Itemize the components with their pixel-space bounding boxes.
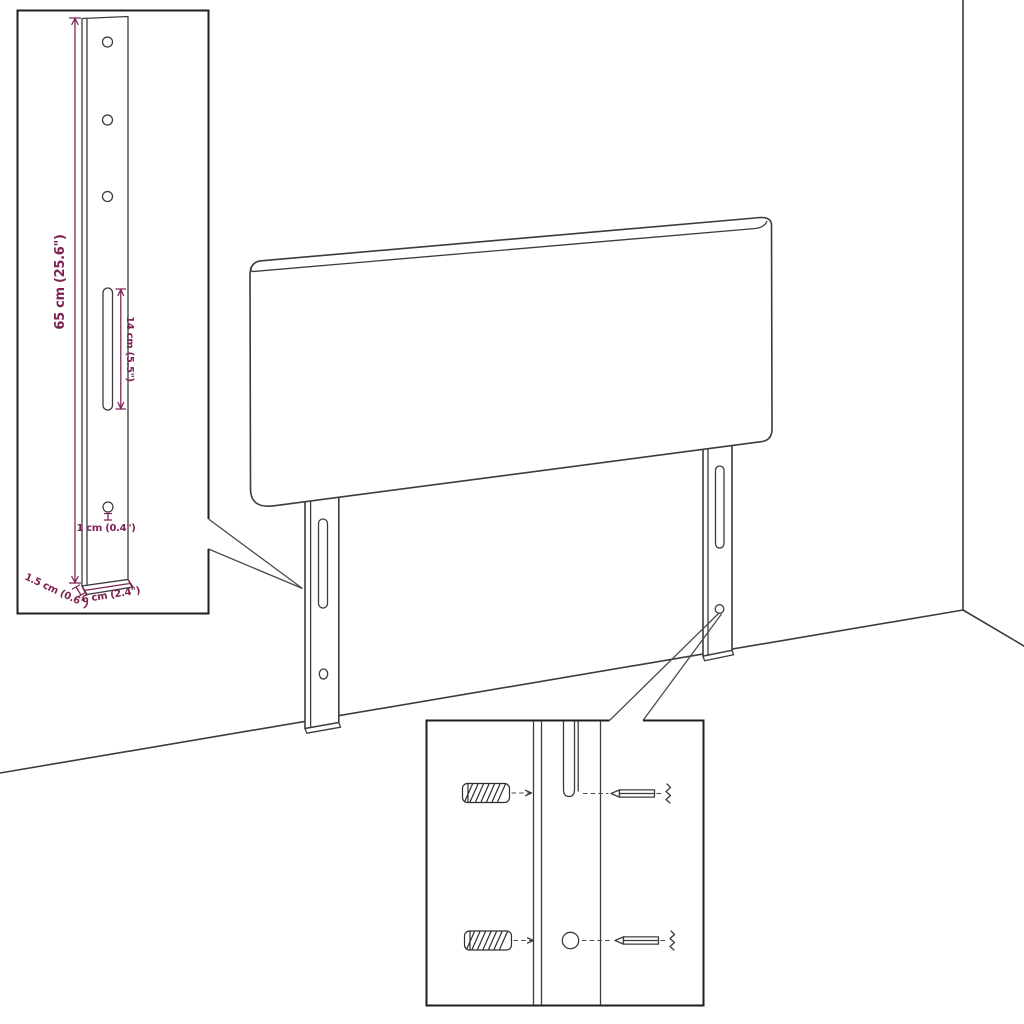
left-leg xyxy=(305,487,341,733)
right-leg-slot xyxy=(716,466,725,548)
diagram-canvas: 65 cm (25.6") 14 cm (5.5") 1 cm (0.4") 1… xyxy=(0,0,1024,1024)
left-leg-hole xyxy=(319,669,327,679)
callout-left-lower-line xyxy=(209,549,303,589)
right-leg-hole xyxy=(715,605,724,614)
bracket-hole xyxy=(562,932,578,948)
floor-line-right xyxy=(963,610,1024,646)
inset-leg-hole-4 xyxy=(103,502,113,512)
inset-mounting-bg xyxy=(427,721,704,1006)
headboard-assembly-diagram: 65 cm (25.6") 14 cm (5.5") 1 cm (0.4") 1… xyxy=(0,0,1024,1024)
right-leg xyxy=(703,435,734,661)
callout-right-lower-line xyxy=(643,614,722,721)
headboard-panel xyxy=(250,217,772,506)
dim-slot-length-label: 14 cm (5.5") xyxy=(124,316,135,382)
dim-hole-diameter-label: 1 cm (0.4") xyxy=(76,523,135,534)
inset-leg-hole-3 xyxy=(103,192,113,202)
callouts xyxy=(209,519,722,721)
inset-leg-hole-1 xyxy=(103,37,113,47)
callout-left-upper-line xyxy=(209,519,303,589)
dim-leg-height-label: 65 cm (25.6") xyxy=(53,234,68,329)
inset-leg-slot xyxy=(103,288,113,410)
inset-leg-detail: 65 cm (25.6") 14 cm (5.5") 1 cm (0.4") 1… xyxy=(18,11,209,614)
panel-outline xyxy=(250,217,772,506)
inset-leg-hole-2 xyxy=(103,115,113,125)
left-leg-slot xyxy=(319,519,328,608)
inset-mounting-detail xyxy=(427,721,704,1006)
